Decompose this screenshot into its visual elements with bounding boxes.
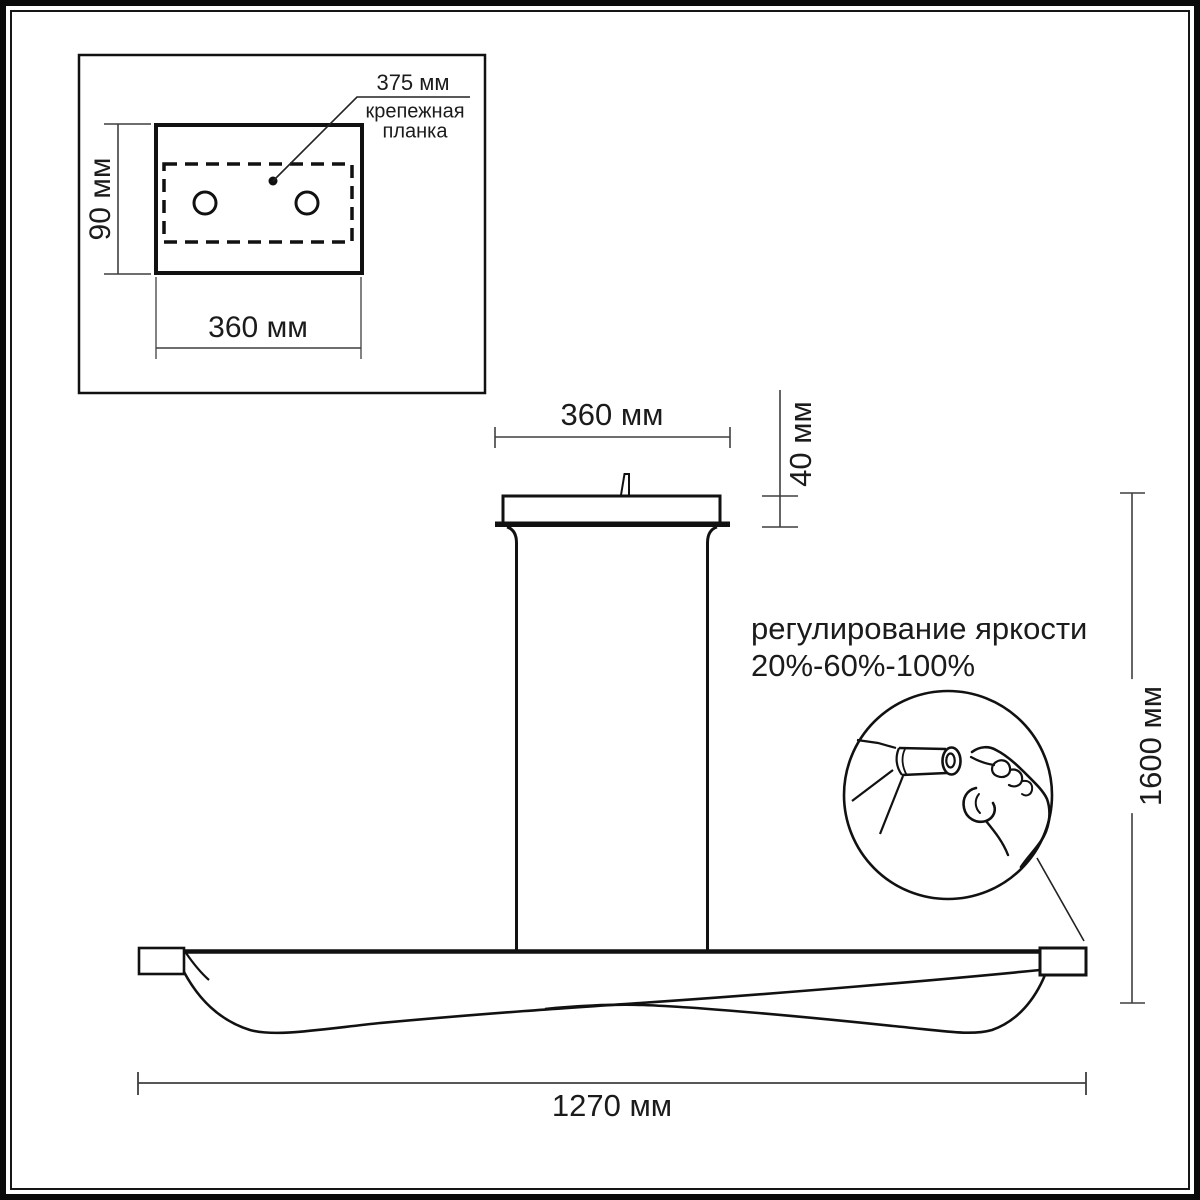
ceiling-canopy [503,496,720,523]
drawing-canvas [0,0,1200,1200]
bracket-length-label: 375 мм [376,70,449,96]
plate-height-label: 90 мм [84,158,118,241]
diffuser-fold-left [186,953,209,980]
dimming-title: регулирование яркости [751,610,1087,647]
bracket-name-label: крепежная планка [365,103,464,142]
canopy-plate-outline [156,125,362,273]
dimming-note: регулирование яркости 20%-60%-100% [751,610,1087,684]
end-cap-right [1040,948,1086,975]
bracket-name-line1: крепежная [365,103,464,123]
overall-height-label: 1600 мм [1131,679,1171,813]
dimming-levels: 20%-60%-100% [751,647,1087,684]
canopy-width-label: 360 мм [561,397,664,433]
bracket-name-line2: планка [365,122,464,142]
stem-left-edge [507,527,517,950]
mounting-bracket-dashed [164,164,352,242]
diffuser-curve-front [184,970,1040,1033]
plate-width-label: 360 мм [208,311,308,345]
end-cap-left [139,948,184,974]
sensor-detail-circle [844,691,1084,941]
bar-length-label: 1270 мм [552,1088,672,1124]
screw-hole-right [296,192,318,214]
screw-hole-left [194,192,216,214]
drawing-page: 375 мм крепежная планка 90 мм 360 мм 360… [0,0,1200,1200]
stem-right-edge [708,527,718,950]
diffuser-curve-back [545,975,1045,1033]
detail-leader-line [1037,858,1084,941]
canopy-pin [621,474,629,495]
canopy-flange [495,522,730,528]
canopy-height-label: 40 мм [783,401,819,487]
